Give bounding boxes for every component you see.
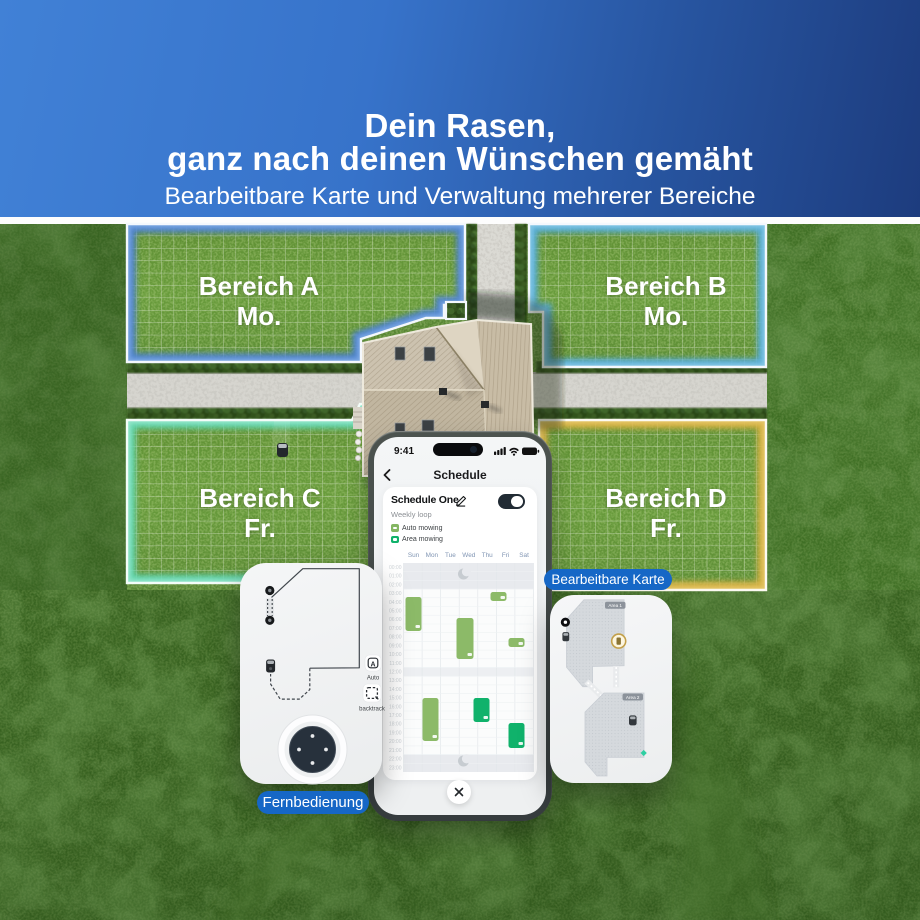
svg-text:backtrack: backtrack (359, 707, 386, 713)
svg-text:Auto: Auto (367, 676, 380, 682)
svg-text:Sat: Sat (519, 552, 529, 559)
svg-text:Tue: Tue (445, 552, 456, 559)
svg-text:A: A (370, 661, 375, 668)
svg-text:Thu: Thu (482, 552, 493, 559)
svg-text:Mon: Mon (426, 552, 439, 559)
svg-text:Wed: Wed (462, 552, 475, 559)
svg-text:Sun: Sun (408, 552, 420, 559)
svg-text:Area 1: Area 1 (608, 603, 622, 608)
svg-text:Area 2: Area 2 (626, 695, 640, 700)
svg-text:Fri: Fri (502, 552, 509, 559)
